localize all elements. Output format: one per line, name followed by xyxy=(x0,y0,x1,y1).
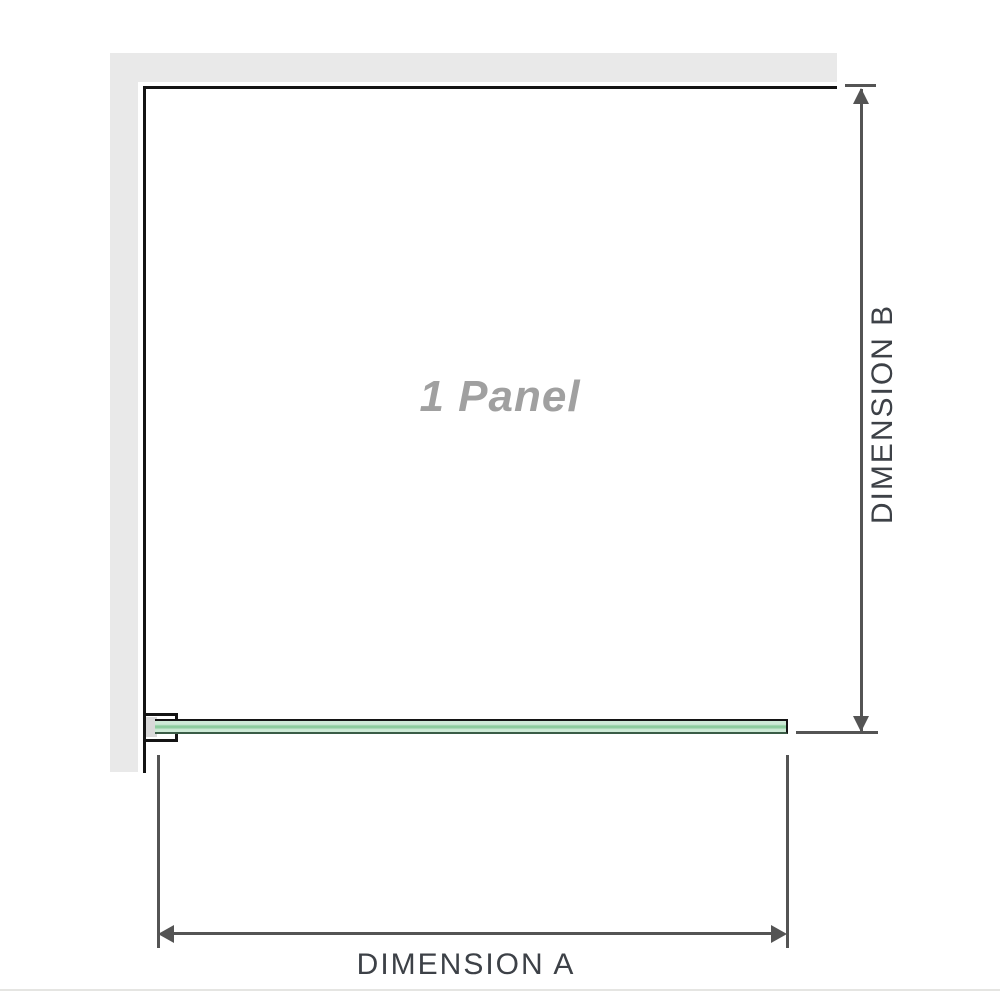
dimension-b-line xyxy=(860,89,863,732)
arrow-left-icon xyxy=(158,925,174,943)
left-wall xyxy=(110,53,138,772)
top-wall xyxy=(110,53,837,82)
dimension-a-label: DIMENSION A xyxy=(357,948,576,982)
dimension-b-label: DIMENSION B xyxy=(866,304,900,524)
glass-panel xyxy=(155,719,788,734)
bottom-divider xyxy=(0,989,1000,991)
shower-panel-diagram: 1 Panel DIMENSION B DIMENSION A xyxy=(0,0,1000,1000)
arrow-up-icon xyxy=(853,88,869,104)
dimension-b-top-tick xyxy=(845,84,876,87)
enclosure-left-line xyxy=(143,86,146,773)
dimension-a-right-extension xyxy=(786,755,789,948)
dimension-a-left-extension xyxy=(157,755,160,948)
dimension-a-line xyxy=(165,932,783,935)
arrow-right-icon xyxy=(771,925,787,943)
panel-count-label: 1 Panel xyxy=(419,372,580,422)
enclosure-top-line xyxy=(143,86,837,89)
arrow-down-icon xyxy=(853,716,869,732)
